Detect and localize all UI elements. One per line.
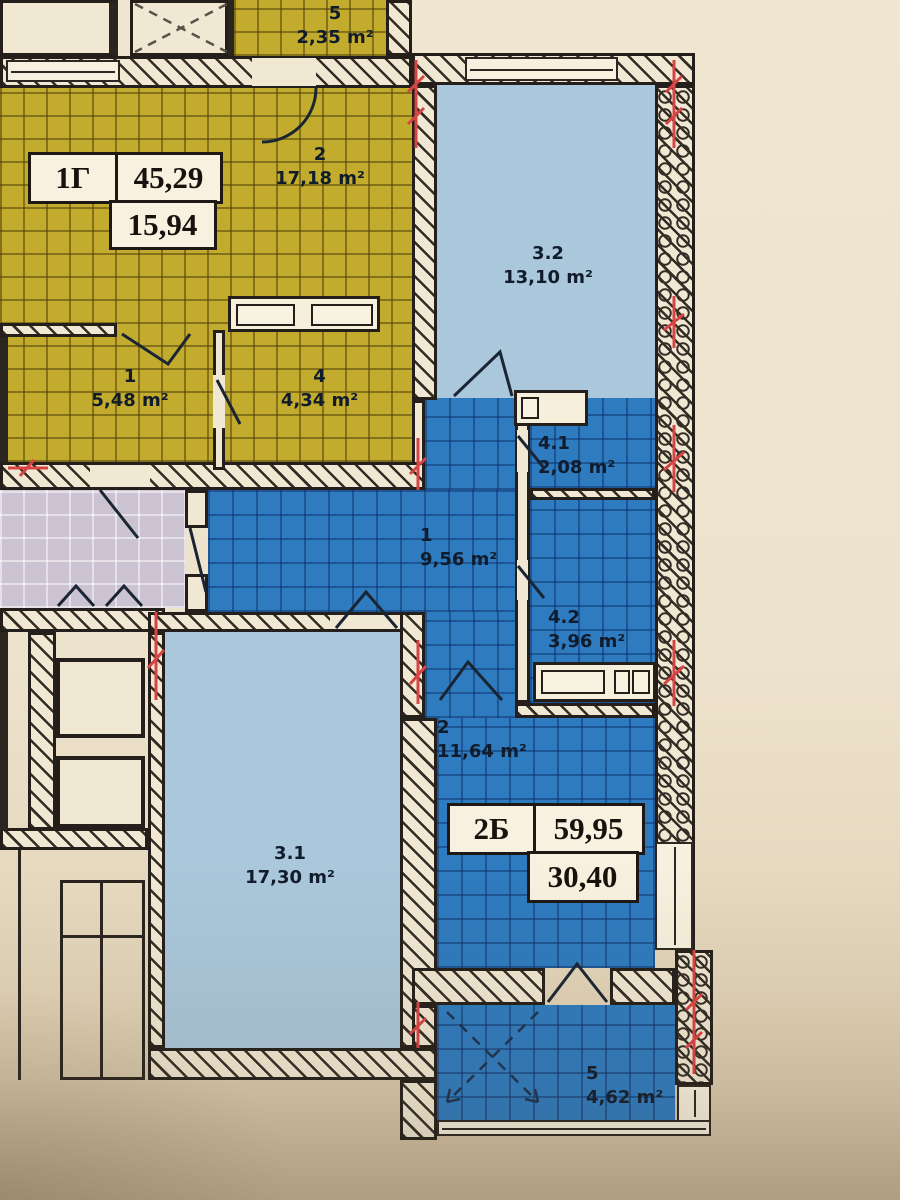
apartment-1g-living-area: 15,94 (109, 200, 217, 250)
window-balcony-bottom (437, 1120, 711, 1136)
kitchen-counter (228, 296, 380, 332)
room-id: 1 (420, 524, 530, 548)
wall-3-1-right-upper (400, 612, 425, 718)
room-2b-3-1-fill (165, 632, 400, 1048)
label-room-2b-3-1: 3.1 17,30 m² (225, 842, 355, 890)
apartment-1g-row2: 15,94 (109, 204, 223, 251)
room-id: 2 (240, 143, 400, 167)
apartment-1g-row1: 1Г 45,29 (28, 155, 223, 204)
neighbor-wall-vertical (28, 632, 56, 830)
neighbor-shaft-2 (56, 756, 145, 828)
counter-cell-right (311, 304, 373, 326)
label-room-2b-3-2: 3.2 13,10 m² (478, 242, 618, 290)
neighbor-wall-edge (0, 632, 8, 830)
wall-2b-entry-lower (185, 574, 208, 612)
room-id: 5 (282, 2, 388, 26)
bath-cell-b (632, 670, 650, 694)
wall-balcony-1g-side (386, 0, 412, 56)
room-id: 1 (70, 365, 190, 389)
room-area: 17,30 m² (225, 866, 355, 890)
wall-2b-entry-upper (185, 490, 208, 528)
wall-3-1-left (148, 632, 165, 1048)
label-room-1g-5: 5 2,35 m² (282, 2, 388, 50)
room-2b-corridor-upper-arm-fill (425, 398, 515, 490)
room-id: 4.1 (538, 432, 648, 456)
door-gap-1g-balcony (252, 58, 316, 86)
apartment-1g-code: 1Г (28, 152, 118, 204)
bath-cell-a (614, 670, 630, 694)
apartment-2b-total-area: 59,95 (533, 803, 645, 855)
room-id: 4.2 (548, 606, 658, 630)
label-room-2b-4-2: 4.2 3,96 m² (548, 606, 658, 654)
wall-left-edge (0, 337, 8, 462)
wall-balcony-left-upper (412, 1005, 437, 1048)
apartment-1g-total-area: 45,29 (115, 152, 223, 204)
label-room-1g-4: 4 4,34 m² (252, 365, 387, 413)
room-area: 9,56 m² (420, 548, 530, 572)
room-area: 2,08 m² (538, 456, 648, 480)
wall-corridor-bottom (0, 608, 165, 632)
counter-cell-left (236, 304, 295, 326)
elevator-shaft (130, 0, 228, 56)
bath-cell-main (541, 670, 605, 694)
washer-cell (521, 397, 539, 419)
room-area: 11,64 m² (437, 740, 552, 764)
door-gap-4-1 (517, 430, 528, 472)
wall-1g-room1-top (0, 323, 117, 337)
room-id: 2 (437, 716, 552, 740)
door-balcony-2b (548, 964, 607, 1002)
neighbor-shaft-1 (56, 658, 145, 738)
label-room-2b-1: 1 9,56 m² (420, 524, 530, 572)
room-area: 13,10 m² (478, 266, 618, 290)
apartment-2b-living-area: 30,40 (527, 851, 639, 903)
wall-room2-bottom-left (412, 968, 545, 1005)
washer-fixture (514, 390, 588, 426)
apartment-2b-label-box: 2Б 59,95 30,40 (447, 806, 645, 903)
label-room-2b-2: 2 11,64 m² (437, 716, 552, 764)
room-area: 4,34 m² (252, 389, 387, 413)
label-room-2b-4-1: 4.1 2,08 m² (538, 432, 648, 480)
bathtub-fixture (533, 662, 656, 702)
room-id: 3.2 (478, 242, 618, 266)
wall-3-1-bottom (148, 1048, 437, 1080)
room-id: 4 (252, 365, 387, 389)
apartment-2b-row2: 30,40 (527, 855, 645, 904)
window-room2 (655, 842, 693, 950)
label-room-1g-2: 2 17,18 m² (240, 143, 400, 191)
exterior-wall-right (655, 85, 695, 950)
door-gap-3-1 (330, 615, 400, 629)
apartment-2b-code: 2Б (447, 803, 536, 855)
window-top-left (6, 60, 120, 82)
window-3-2 (465, 57, 618, 81)
label-room-1g-1: 1 5,48 m² (70, 365, 190, 413)
door-gap-room4 (213, 375, 225, 428)
room-area: 5,48 m² (70, 389, 190, 413)
room-id: 3.1 (225, 842, 355, 866)
wall-room2-bottom-right (610, 968, 675, 1005)
stair-room (0, 0, 118, 56)
apartment-1g-label-box: 1Г 45,29 15,94 (28, 155, 223, 250)
neighbor-line-1 (18, 850, 21, 1080)
label-room-2b-5: 5 4,62 m² (586, 1062, 681, 1110)
room-2b-corridor-lower-arm-fill (425, 612, 515, 718)
apartment-2b-row1: 2Б 59,95 (447, 806, 645, 855)
neighbor-line-3 (100, 880, 103, 1080)
room-area: 4,62 m² (586, 1086, 681, 1110)
wall-4-1-4-2-separator (530, 488, 655, 500)
door-gap-1g-entry (90, 465, 150, 487)
window-balcony-right (677, 1085, 711, 1122)
common-corridor-fill (0, 490, 185, 608)
neighbor-wall-horizontal (0, 828, 148, 850)
room-id: 5 (586, 1062, 681, 1086)
wall-elevator-side (228, 0, 234, 56)
wall-balcony-left (400, 1080, 437, 1140)
room-area: 2,35 m² (282, 26, 388, 50)
room-area: 17,18 m² (240, 167, 400, 191)
floor-plan: 1Г 45,29 15,94 2Б 59,95 30,40 2 17,18 m²… (0, 0, 900, 1200)
room-area: 3,96 m² (548, 630, 658, 654)
wall-between-1g-and-3-2 (412, 85, 437, 400)
